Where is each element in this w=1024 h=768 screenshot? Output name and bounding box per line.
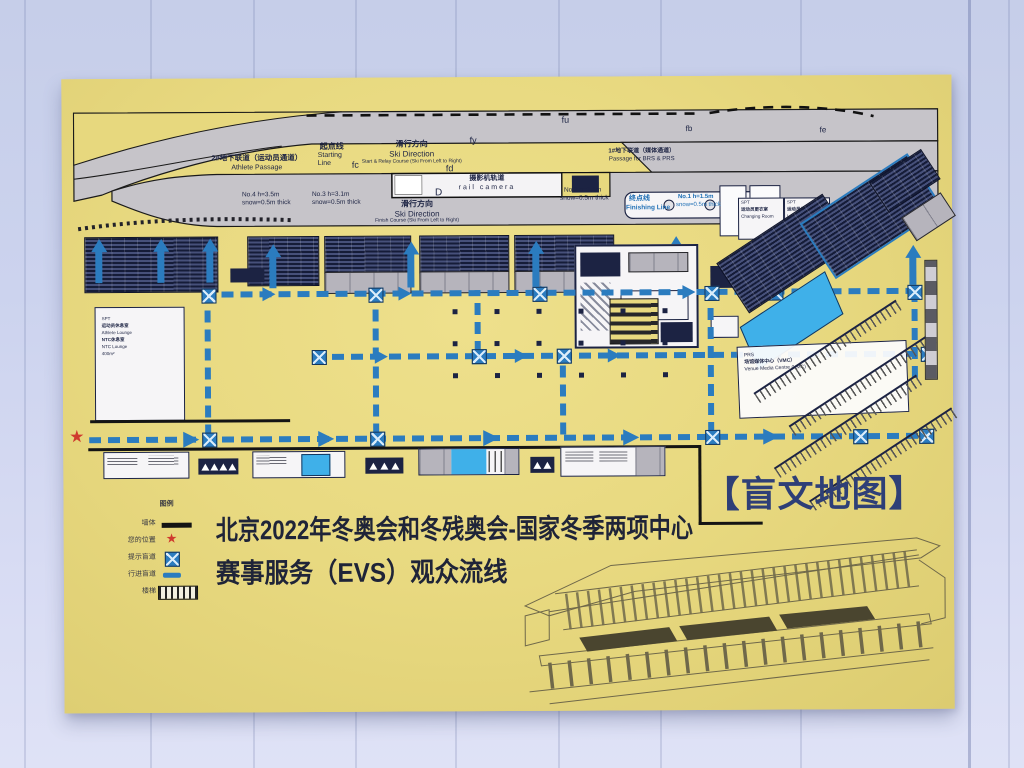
you-are-here-star-icon: ★ <box>69 427 84 447</box>
legend-label-stairs: 楼梯 <box>142 588 156 596</box>
map-scale-bar <box>924 260 938 380</box>
flow-arrow-up <box>265 244 281 257</box>
flow-arrow-right <box>398 287 411 301</box>
micro-label <box>565 452 593 462</box>
flow-stem <box>157 251 164 283</box>
tactile-node <box>704 286 719 301</box>
service-cell-gray <box>635 447 664 475</box>
wall-seam <box>968 0 971 768</box>
ntc-l3: Athlete Lounge <box>102 330 132 335</box>
entry-gate <box>530 457 554 473</box>
snow-note-4: No.4 h=3.5m <box>242 191 279 199</box>
tactile-node <box>472 349 487 364</box>
track-point-fu: fu <box>562 115 570 125</box>
snow-note-2: No.2 h=1.1m <box>564 187 601 195</box>
flow-arrow-up <box>91 239 107 252</box>
snow-note-2b: snow=0.5m thick <box>560 194 609 202</box>
cluster-gray-block <box>628 252 688 272</box>
athlete-lounge-l1: SPT <box>787 199 796 204</box>
accessible-service-cell <box>451 449 486 474</box>
gate-arrow-up <box>391 463 399 470</box>
media-passage-label-cn: 1#地下联道（媒体通道） <box>592 148 692 155</box>
warning-paving-symbol <box>165 552 180 567</box>
tactile-node <box>853 429 868 444</box>
gate-arrow-up <box>369 463 377 470</box>
ntc-l4: NTC休息室 <box>102 337 125 342</box>
guiding-paving-symbol <box>163 573 181 578</box>
photo-of-braille-map-poster: { "poster": { "title_line1": "北京2022年冬奥会… <box>0 0 1024 768</box>
entry-gate <box>365 458 403 474</box>
flow-arrow-right <box>262 287 275 301</box>
gate-arrow-up <box>210 464 218 471</box>
ntc-l6: 400m² <box>102 351 115 356</box>
stairs-symbol <box>158 586 198 600</box>
micro-label <box>256 455 286 464</box>
tactile-flow-line-vertical[interactable] <box>474 290 480 353</box>
flow-arrow-right <box>763 429 779 445</box>
tactile-flow-line-vertical[interactable] <box>707 289 714 434</box>
tactile-node <box>368 288 383 303</box>
tactile-node <box>370 432 385 447</box>
service-cell-gray <box>419 449 451 474</box>
grandstand-3 <box>324 236 411 274</box>
tactile-node <box>557 349 572 364</box>
poster-title-line2: 赛事服务（EVS）观众流线 <box>216 557 508 590</box>
flow-arrow-up <box>528 241 544 254</box>
tactile-node <box>532 287 547 302</box>
athlete-passage-label-en: Athlete Passage <box>192 164 322 173</box>
snow-note-4b: snow=0.5m thick <box>242 199 291 207</box>
tactile-flow-line-vertical[interactable] <box>204 292 211 437</box>
ntc-l1: SPT <box>102 316 111 321</box>
media-passage-label-en: Passage for BRS & PRS <box>592 156 692 163</box>
entry-gate <box>198 458 238 474</box>
flow-stem <box>206 251 213 283</box>
flow-arrow-right <box>623 429 639 445</box>
wall-line <box>698 445 701 525</box>
braille-map-poster: fu fy fc fd D fb fe 2#地下联道（运动员通道） Athlet… <box>61 75 954 714</box>
ski-direction-start-sub: Start & Relay Course (Ski From Left to R… <box>332 159 492 166</box>
venue-building-sketch <box>519 518 948 710</box>
legend-label-guiding-paving: 行进盲道 <box>128 571 156 579</box>
tactile-flow-line-vertical[interactable] <box>560 353 566 435</box>
starting-line-label-cn: 起点线 <box>320 142 344 151</box>
wall-seam <box>24 0 26 768</box>
flow-stem <box>95 251 102 283</box>
flow-arrow-up <box>153 239 169 252</box>
ski-direction-finish-cn: 滑行方向 <box>362 199 472 209</box>
service-cell-ticks <box>488 451 502 472</box>
micro-label <box>148 456 178 465</box>
snow-note-3b: snow=0.5m thick <box>312 199 361 207</box>
flow-arrow-up <box>403 241 419 254</box>
gate-arrow-up <box>201 464 209 471</box>
tactile-node <box>705 430 720 445</box>
ski-direction-start-cn: 滑行方向 <box>362 139 462 149</box>
accessible-service-cell <box>301 454 330 476</box>
wall-line-symbol <box>162 523 192 528</box>
central-building-cluster <box>574 244 699 349</box>
rail-camera-label-en: rail camera <box>442 184 532 193</box>
service-building <box>418 448 519 476</box>
changing-room-l3: Changing Room <box>741 214 774 219</box>
flow-stem <box>909 257 916 285</box>
changing-room-l1: SPT <box>741 200 750 205</box>
tactile-node <box>312 350 327 365</box>
tactile-node <box>202 433 217 448</box>
ntc-l2: 运动员休息室 <box>102 323 129 328</box>
legend-label-location: 您的位置 <box>128 537 156 545</box>
grandstand-4 <box>419 235 509 273</box>
micro-label <box>599 451 627 461</box>
gate-arrow-up <box>228 463 236 470</box>
flow-stem <box>269 256 276 288</box>
ntc-lounge-box: SPT 运动员休息室 Athlete Lounge NTC休息室 NTC Lou… <box>95 307 186 421</box>
tactile-flow-line-vertical[interactable] <box>911 288 917 378</box>
timing-equipment <box>230 268 264 282</box>
tactile-node <box>201 289 216 304</box>
cluster-annex-2 <box>711 316 739 338</box>
flow-arrow-right <box>608 348 621 362</box>
athlete-passage-label-cn: 2#地下联道（运动员通道） <box>192 154 322 163</box>
flow-arrow-right <box>515 349 528 363</box>
staircase <box>610 298 659 344</box>
finishing-line-label-cn: 终点线 <box>629 195 650 203</box>
ski-direction-finish-sub: Finish Course (Ski From Left to Right) <box>337 218 497 225</box>
snow-note-3: No.3 h=3.1m <box>312 191 349 199</box>
flow-arrow-right <box>318 431 334 447</box>
braille-map-tag: 【盲文地图】 <box>703 473 925 516</box>
finishing-line-label-en: Finishing Line <box>626 204 670 212</box>
location-star-icon: ★ <box>166 532 178 547</box>
flow-stem <box>532 253 539 287</box>
track-point-fe: fe <box>820 125 827 134</box>
flow-arrow-right <box>682 285 695 299</box>
service-building <box>103 452 189 479</box>
service-building <box>560 446 665 477</box>
snow-note-1: No.1 h=1.5m <box>678 194 714 201</box>
track-point-fy: fy <box>470 135 477 145</box>
gate-arrow-up <box>219 463 227 470</box>
micro-label <box>107 456 137 465</box>
flow-arrow-up <box>202 239 218 252</box>
service-building <box>252 451 345 478</box>
legend-header: 图例 <box>160 501 174 509</box>
changing-room-l2: 运动员更衣室 <box>741 207 768 212</box>
wall-seam <box>1008 0 1010 768</box>
ntc-l5: NTC Lounge <box>102 344 128 349</box>
legend-label-wall: 墙体 <box>142 520 156 528</box>
cluster-block <box>580 252 620 276</box>
service-cell-gray <box>504 449 518 474</box>
flow-stem <box>407 253 414 287</box>
rail-camera-label-cn: 摄影机轨道 <box>442 175 532 184</box>
legend-label-warning-paving: 提示盲道 <box>128 554 156 562</box>
gate-arrow-up <box>533 462 541 469</box>
flow-arrow-right <box>483 430 499 446</box>
track-point-fb: fb <box>686 124 693 133</box>
tactile-node <box>907 285 922 300</box>
flow-arrow-right <box>183 432 199 448</box>
snow-note-1b: snow=0.5m thick <box>676 202 721 209</box>
flow-arrow-up <box>905 245 921 258</box>
gate-arrow-up <box>543 462 551 469</box>
flow-arrow-right <box>375 350 388 364</box>
gate-arrow-up <box>380 463 388 470</box>
